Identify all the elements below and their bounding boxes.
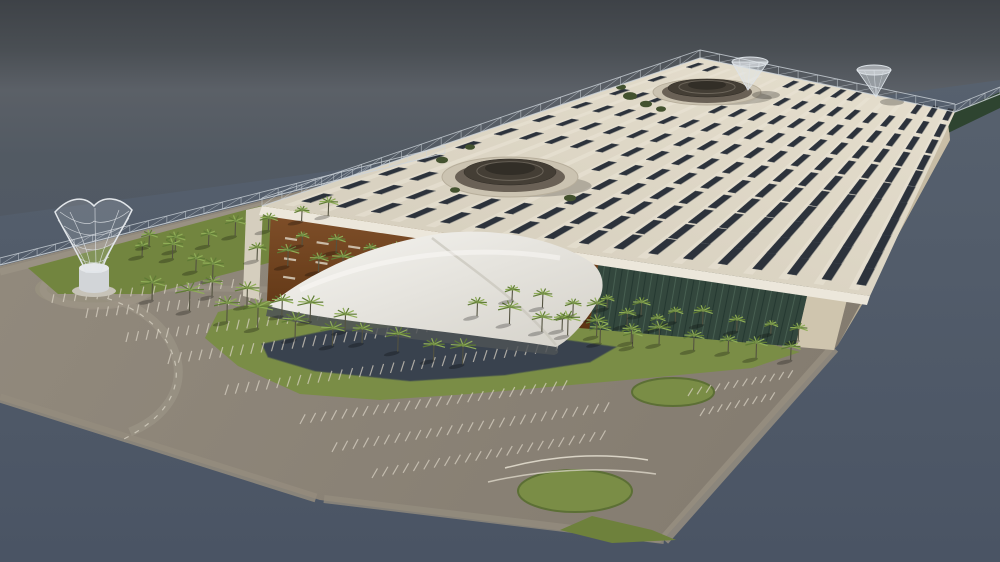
roundabout-lawn-circle: [518, 470, 632, 512]
rendering-image: [0, 0, 1000, 562]
scene-svg: [0, 0, 1000, 562]
roundabout-lawn-circle: [632, 378, 714, 406]
